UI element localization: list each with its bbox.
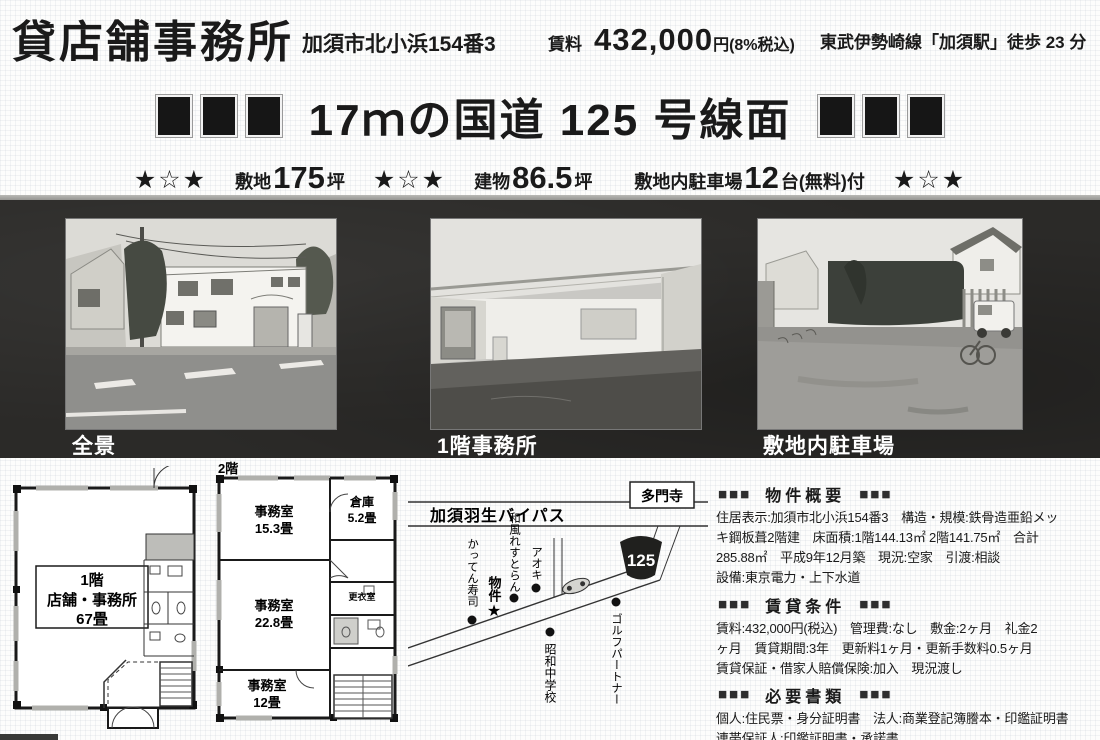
- headline-reflection: 17ｍの国道 125 号線面: [0, 134, 1100, 160]
- site-value: 175: [273, 160, 325, 195]
- map-golf-label: ゴルフパートナー: [610, 612, 623, 705]
- fp2-room2-name: 倉庫: [349, 494, 374, 509]
- exterior-photo-graphic: [66, 219, 336, 429]
- section-marker-icon: ■■■: [859, 686, 892, 703]
- section-header-terms: ■■■ 賃貸条件 ■■■: [718, 593, 1098, 617]
- detail-line: 285.88㎡ 平成9年12月築 現況:空家 引渡:相談: [716, 548, 1098, 568]
- floorplan-1f: 1階 店舗・事務所 67畳: [8, 466, 204, 739]
- site-label: 敷地: [235, 172, 271, 192]
- station-access: 東武伊勢崎線「加須駅」徒歩 23 分: [820, 28, 1086, 53]
- property-address: 加須市北小浜154番3: [302, 28, 496, 58]
- scan-mark: [0, 734, 58, 740]
- photo-band: 全景 1階事務所: [0, 200, 1100, 458]
- stars-icon: ★☆★: [893, 165, 966, 195]
- detail-line: キ鋼板葺2階建 床面積:1階144.13㎡ 2階141.75㎡ 合計: [716, 528, 1098, 548]
- headline-square: [862, 94, 900, 138]
- fp2-room3-size: 22.8畳: [255, 615, 293, 630]
- map-graphic: 加須羽生バイパス 多門寺 125 かってん寿司 物件 ★ 和風れすとらん ア: [408, 480, 708, 736]
- building-label: 建物: [474, 172, 510, 192]
- section-header-documents: ■■■ 必要書類 ■■■: [718, 683, 1098, 707]
- headline-square: [200, 94, 238, 138]
- headline-squares-right: [817, 94, 945, 138]
- detail-line: 設備:東京電力・上下水道: [716, 568, 1098, 588]
- section-title: 物件概要: [765, 482, 845, 506]
- photo-office: [430, 218, 702, 430]
- office-photo-graphic: [431, 219, 701, 429]
- section-marker-icon: ■■■: [859, 596, 892, 613]
- map-bypass-label: 加須羽生バイパス: [429, 506, 566, 525]
- stars-icon: ★☆★: [134, 165, 207, 195]
- headline-square: [245, 94, 283, 138]
- parking-photo-graphic: [758, 219, 1022, 429]
- rent-label: 賃料: [548, 30, 582, 55]
- section-marker-icon: ■■■: [718, 486, 751, 503]
- section-marker-icon: ■■■: [859, 486, 892, 503]
- section-marker-icon: ■■■: [718, 596, 751, 613]
- photo-caption: 1階事務所: [437, 430, 538, 460]
- fp2-room5-size: 12畳: [253, 695, 280, 710]
- access-map: 加須羽生バイパス 多門寺 125 かってん寿司 物件 ★ 和風れすとらん ア: [408, 480, 708, 740]
- detail-line: 連帯保証人:印鑑証明書・承諾書: [716, 729, 1098, 740]
- headline-squares-left: [155, 94, 283, 138]
- parking-value: 12: [744, 160, 778, 195]
- map-restaurant-label: 和風れすとらん: [508, 512, 521, 593]
- rental-flyer: 貸店舗事務所 加須市北小浜154番3 賃料 432,000 円(8%税込) 東武…: [0, 0, 1100, 740]
- section-title: 必要書類: [765, 683, 845, 707]
- fp2-room5-name: 事務室: [247, 678, 286, 693]
- photo-parking: [757, 218, 1023, 430]
- detail-line: 賃料:432,000円(税込) 管理費:なし 敷金:2ヶ月 礼金2: [716, 619, 1098, 639]
- fp1-label-floor: 1階: [80, 571, 103, 589]
- headline-square: [817, 94, 855, 138]
- building-value: 86.5: [512, 160, 572, 195]
- page-title: 貸店舗事務所: [12, 6, 294, 70]
- stats-row: ★☆★ 敷地175坪 ★☆★ 建物86.5坪 敷地内駐車場12台(無料)付 ★☆…: [0, 160, 1100, 196]
- map-temple-label: 多門寺: [641, 488, 683, 504]
- rent-amount: 432,000: [594, 22, 713, 58]
- floorplan-1f-graphic: 1階 店舗・事務所 67畳: [8, 466, 204, 734]
- fp2-room4-name: 更衣室: [348, 591, 375, 602]
- rent-tax-note: 円(8%税込): [713, 31, 795, 55]
- section-marker-icon: ■■■: [718, 686, 751, 703]
- property-star-icon: ★: [487, 603, 501, 620]
- route-125-number: 125: [627, 551, 655, 570]
- section-title: 賃貸条件: [765, 593, 845, 617]
- parking-label: 敷地内駐車場: [634, 172, 742, 192]
- fp2-floor-label: 2階: [218, 461, 238, 476]
- map-aoki-label: アオキ: [530, 546, 542, 581]
- detail-line: 賃貸保証・借家人賠償保険:加入 現況渡し: [716, 659, 1098, 679]
- headline-square: [155, 94, 193, 138]
- section-header-overview: ■■■ 物件概要 ■■■: [718, 482, 1098, 506]
- fp1-label-size: 67畳: [76, 611, 108, 628]
- fp2-room1-name: 事務室: [254, 504, 293, 519]
- floorplan-2f: 2階: [212, 460, 404, 737]
- fp1-label-use: 店舗・事務所: [47, 591, 137, 609]
- photo-exterior: [65, 218, 337, 430]
- parking-unit: 台(無料)付: [781, 172, 865, 192]
- stars-icon: ★☆★: [373, 165, 446, 195]
- fp2-room3-name: 事務室: [254, 598, 293, 613]
- site-unit: 坪: [327, 172, 345, 192]
- photo-caption: 敷地内駐車場: [763, 430, 895, 460]
- floorplan-2f-graphic: 2階: [212, 460, 404, 732]
- fp2-room1-size: 15.3畳: [255, 521, 293, 536]
- map-sushi-label: かってん寿司: [466, 538, 479, 607]
- map-property-label: 物件: [487, 575, 502, 603]
- photo-caption: 全景: [72, 430, 116, 460]
- building-unit: 坪: [574, 172, 592, 192]
- map-school-label: 昭和中学校: [543, 643, 557, 703]
- headline-square: [907, 94, 945, 138]
- detail-line: 個人:住民票・身分証明書 法人:商業登記簿謄本・印鑑証明書: [716, 709, 1098, 729]
- detail-line: 住居表示:加須市北小浜154番3 構造・規模:鉄骨造亜鉛メッ: [716, 508, 1098, 528]
- fp2-room2-size: 5.2畳: [348, 511, 377, 525]
- rent-line: 賃料 432,000 円(8%税込): [548, 22, 795, 58]
- detail-line: ヶ月 賃貸期間:3年 更新料1ヶ月・更新手数料0.5ヶ月: [716, 639, 1098, 659]
- details-panel: ■■■ 物件概要 ■■■ 住居表示:加須市北小浜154番3 構造・規模:鉄骨造亜…: [716, 478, 1098, 740]
